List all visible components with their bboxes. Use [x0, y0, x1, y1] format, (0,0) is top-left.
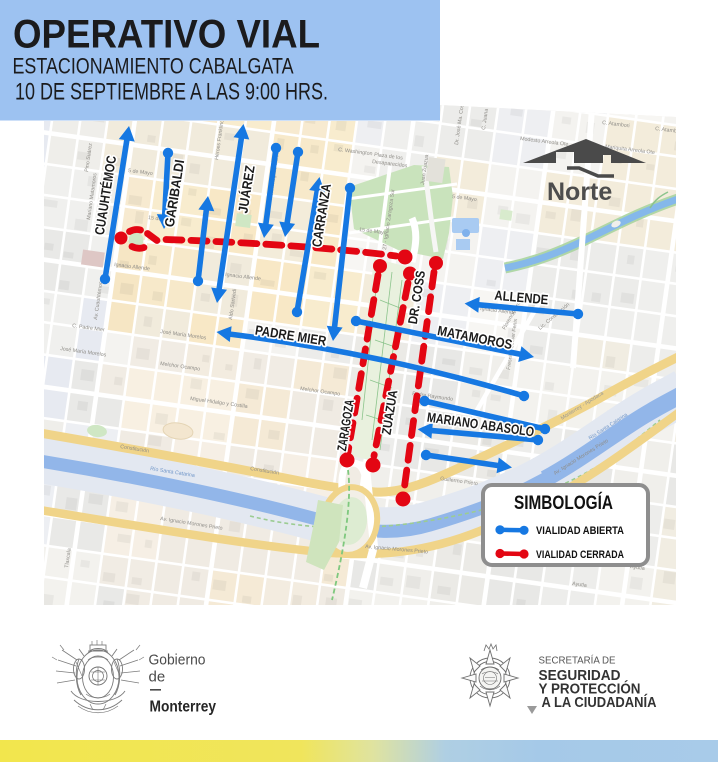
svg-text:10 DE SEPTIEMBRE A LAS 9:00 HR: 10 DE SEPTIEMBRE A LAS 9:00 HRS.	[15, 79, 328, 106]
svg-text:ESTACIONAMIENTO CABALGATA: ESTACIONAMIENTO CABALGATA	[13, 54, 294, 79]
svg-text:VIALIDAD ABIERTA: VIALIDAD ABIERTA	[536, 525, 624, 537]
svg-text:A LA CIUDADANÍA: A LA CIUDADANÍA	[542, 694, 657, 711]
svg-text:SECRETARÍA DE: SECRETARÍA DE	[539, 654, 616, 667]
svg-text:OPERATIVO VIAL: OPERATIVO VIAL	[13, 13, 320, 57]
svg-text:Monterrey: Monterrey	[150, 699, 217, 716]
svg-text:Gobierno: Gobierno	[149, 652, 206, 669]
svg-text:de: de	[149, 669, 166, 686]
svg-text:SIMBOLOGÍA: SIMBOLOGÍA	[514, 492, 613, 514]
svg-text:Norte: Norte	[547, 178, 612, 206]
svg-text:VIALIDAD CERRADA: VIALIDAD CERRADA	[536, 549, 624, 561]
